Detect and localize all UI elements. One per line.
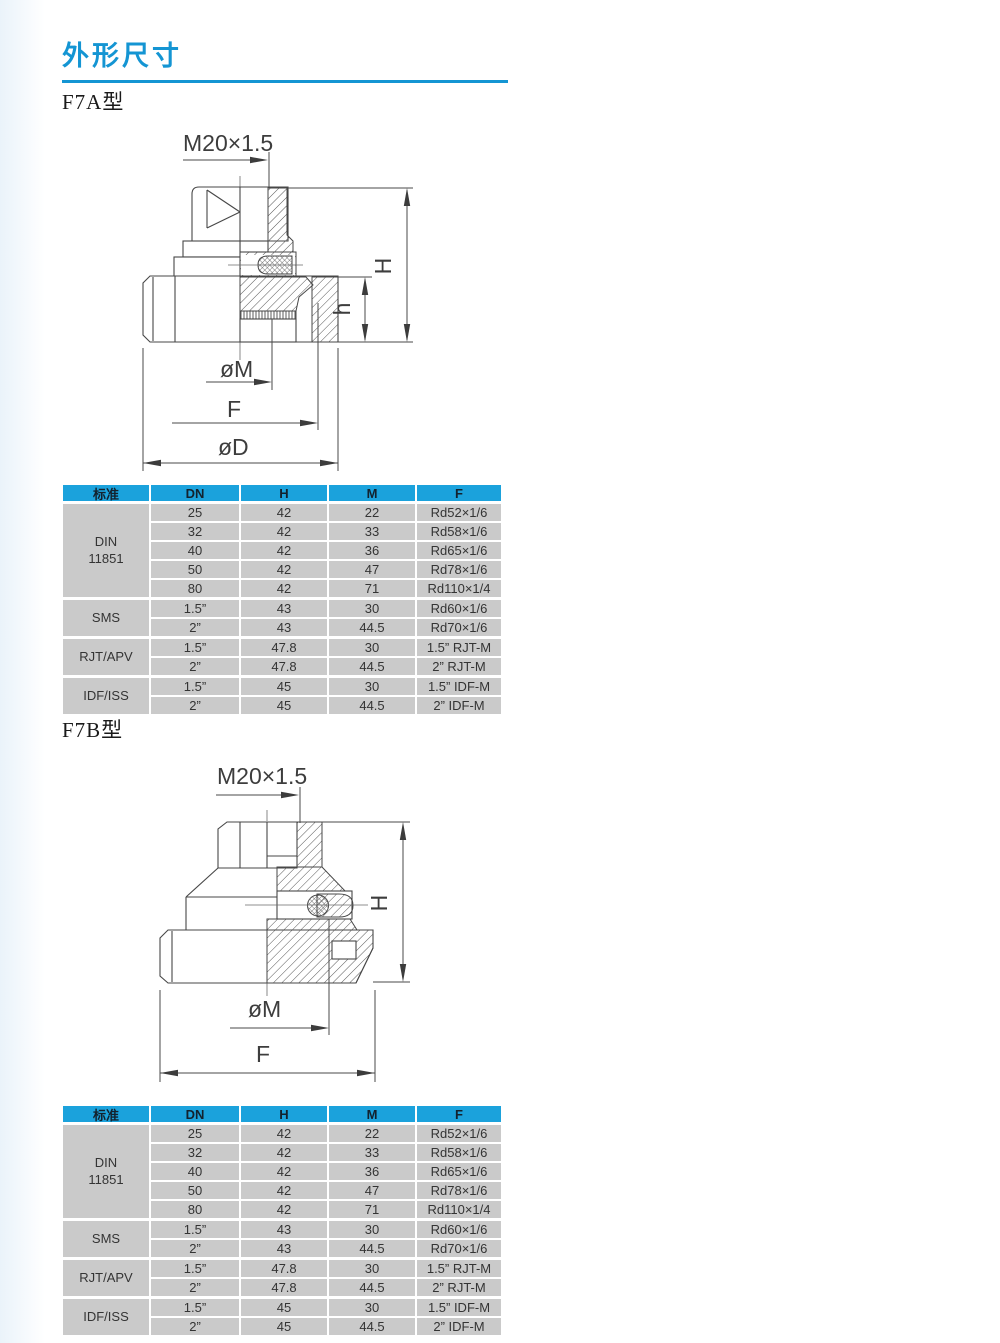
gasket-assembly — [245, 891, 368, 919]
catalog-page: 外形尺寸 F7A型 M20×1.5 — [0, 0, 1000, 1343]
standard-cell: DIN 11851 — [63, 504, 149, 597]
group-rows: 1.5”47.8301.5” RJT-M2”47.844.52” RJT-M — [151, 1260, 501, 1296]
table-cell: 30 — [329, 1299, 415, 1316]
H-label: H — [370, 258, 396, 275]
table-cell: 2” IDF-M — [417, 1318, 501, 1335]
table-cell: 1.5” RJT-M — [417, 1260, 501, 1277]
standard-cell: SMS — [63, 1221, 149, 1257]
table-cell: Rd52×1/6 — [417, 504, 501, 521]
section-hatch — [277, 867, 347, 893]
table-cell: 42 — [241, 542, 327, 559]
table-row: 1.5”4330Rd60×1/6 — [151, 600, 501, 617]
table-cell: Rd60×1/6 — [417, 600, 501, 617]
section-label-f7b: F7B型 — [62, 714, 123, 744]
table-cell: 1.5” — [151, 600, 239, 617]
standard-cell: IDF/ISS — [63, 1299, 149, 1335]
table-cell: 47.8 — [241, 658, 327, 675]
column-header: DN — [151, 1106, 239, 1122]
table-header-row: 标准DNHMF — [63, 1106, 501, 1122]
table-cell: 44.5 — [329, 658, 415, 675]
dim-thread: M20×1.5 — [216, 763, 307, 823]
group-rows: 1.5”45301.5” IDF-M2”4544.52” IDF-M — [151, 678, 501, 714]
standard-group: DIN 11851254222Rd52×1/6324233Rd58×1/6404… — [63, 1125, 501, 1218]
table-cell: Rd58×1/6 — [417, 523, 501, 540]
table-cell: 40 — [151, 542, 239, 559]
table-cell: 43 — [241, 619, 327, 636]
group-rows: 1.5”47.8301.5” RJT-M2”47.844.52” RJT-M — [151, 639, 501, 675]
standard-cell: RJT/APV — [63, 1260, 149, 1296]
table-cell: 40 — [151, 1163, 239, 1180]
table-cell: 1.5” RJT-M — [417, 639, 501, 656]
section-label-f7a: F7A型 — [62, 86, 124, 116]
table-cell: Rd58×1/6 — [417, 1144, 501, 1161]
standard-group: SMS1.5”4330Rd60×1/62”4344.5Rd70×1/6 — [63, 1221, 501, 1257]
table-cell: 2” RJT-M — [417, 658, 501, 675]
table-row: 404236Rd65×1/6 — [151, 542, 501, 559]
dimension-table-f7b: 标准DNHMFDIN 11851254222Rd52×1/6324233Rd58… — [63, 1106, 501, 1335]
standard-cell: DIN 11851 — [63, 1125, 149, 1218]
table-row: 2”4544.52” IDF-M — [151, 1318, 501, 1335]
table-cell: 45 — [241, 697, 327, 714]
table-cell: 2” IDF-M — [417, 697, 501, 714]
column-header: DN — [151, 485, 239, 501]
page-title-block: 外形尺寸 — [62, 34, 508, 83]
table-cell: Rd65×1/6 — [417, 542, 501, 559]
table-cell: 2” — [151, 1318, 239, 1335]
table-row: 504247Rd78×1/6 — [151, 1182, 501, 1199]
table-cell: 33 — [329, 1144, 415, 1161]
standard-cell: SMS — [63, 600, 149, 636]
h-label: h — [329, 303, 355, 316]
standard-group: DIN 11851254222Rd52×1/6324233Rd58×1/6404… — [63, 504, 501, 597]
dim-thread: M20×1.5 — [183, 130, 273, 190]
table-cell: 1.5” — [151, 678, 239, 695]
table-cell: 1.5” — [151, 639, 239, 656]
column-header: M — [329, 1106, 415, 1122]
table-cell: 33 — [329, 523, 415, 540]
table-cell: Rd78×1/6 — [417, 1182, 501, 1199]
D-label: øD — [218, 434, 249, 460]
table-cell: 71 — [329, 580, 415, 597]
table-cell: 45 — [241, 1299, 327, 1316]
table-cell: 22 — [329, 504, 415, 521]
table-cell: Rd60×1/6 — [417, 1221, 501, 1238]
table-cell: Rd70×1/6 — [417, 1240, 501, 1257]
table-cell: 47.8 — [241, 639, 327, 656]
standard-group: IDF/ISS1.5”45301.5” IDF-M2”4544.52” IDF-… — [63, 678, 501, 714]
table-cell: 47.8 — [241, 1279, 327, 1296]
nut — [160, 930, 373, 983]
table-cell: 42 — [241, 1144, 327, 1161]
cap — [218, 822, 322, 868]
dimension-table-f7a: 标准DNHMFDIN 11851254222Rd52×1/6324233Rd58… — [63, 485, 501, 714]
table-row: 804271Rd110×1/4 — [151, 1201, 501, 1218]
table-row: 804271Rd110×1/4 — [151, 580, 501, 597]
table-cell: 50 — [151, 561, 239, 578]
table-cell: 45 — [241, 1318, 327, 1335]
table-cell: 1.5” — [151, 1299, 239, 1316]
table-cell: 42 — [241, 580, 327, 597]
table-cell: 42 — [241, 1163, 327, 1180]
table-cell: 2” — [151, 1279, 239, 1296]
f7a-dimension-drawing: M20×1.5 — [125, 122, 465, 478]
thread-label: M20×1.5 — [183, 130, 273, 156]
group-rows: 254222Rd52×1/6324233Rd58×1/6404236Rd65×1… — [151, 504, 501, 597]
thread-stub — [240, 319, 296, 342]
table-cell: 42 — [241, 1182, 327, 1199]
table-cell: 42 — [241, 504, 327, 521]
table-cell: 47 — [329, 561, 415, 578]
table-cell: 80 — [151, 580, 239, 597]
table-row: 2”4344.5Rd70×1/6 — [151, 1240, 501, 1257]
table-cell: 43 — [241, 1240, 327, 1257]
table-cell: 25 — [151, 504, 239, 521]
table-cell: 32 — [151, 523, 239, 540]
column-header: 标准 — [63, 1106, 149, 1122]
table-cell: 36 — [329, 1163, 415, 1180]
table-cell: 44.5 — [329, 1318, 415, 1335]
table-cell: 22 — [329, 1125, 415, 1142]
thread-zone — [240, 311, 296, 319]
table-row: 324233Rd58×1/6 — [151, 523, 501, 540]
section-hatch — [267, 919, 357, 930]
table-cell: 1.5” IDF-M — [417, 1299, 501, 1316]
table-cell: 30 — [329, 1260, 415, 1277]
M-label: øM — [248, 996, 281, 1022]
table-cell: 44.5 — [329, 1279, 415, 1296]
table-cell: 47 — [329, 1182, 415, 1199]
nut — [143, 276, 338, 342]
table-cell: 44.5 — [329, 1240, 415, 1257]
standard-group: IDF/ISS1.5”45301.5” IDF-M2”4544.52” IDF-… — [63, 1299, 501, 1335]
section-hatch — [267, 930, 373, 983]
standard-cell: RJT/APV — [63, 639, 149, 675]
table-cell: 25 — [151, 1125, 239, 1142]
table-cell: 32 — [151, 1144, 239, 1161]
table-cell: Rd70×1/6 — [417, 619, 501, 636]
table-row: 2”47.844.52” RJT-M — [151, 1279, 501, 1296]
table-cell: 30 — [329, 1221, 415, 1238]
table-cell: 2” — [151, 697, 239, 714]
table-row: 2”4544.52” IDF-M — [151, 697, 501, 714]
thread-notch — [240, 241, 268, 252]
standard-group: RJT/APV1.5”47.8301.5” RJT-M2”47.844.52” … — [63, 1260, 501, 1296]
group-rows: 1.5”4330Rd60×1/62”4344.5Rd70×1/6 — [151, 1221, 501, 1257]
table-cell: 71 — [329, 1201, 415, 1218]
group-rows: 1.5”4330Rd60×1/62”4344.5Rd70×1/6 — [151, 600, 501, 636]
column-header: 标准 — [63, 485, 149, 501]
table-cell: Rd78×1/6 — [417, 561, 501, 578]
table-row: 254222Rd52×1/6 — [151, 504, 501, 521]
step — [174, 257, 240, 277]
standard-group: RJT/APV1.5”47.8301.5” RJT-M2”47.844.52” … — [63, 639, 501, 675]
table-cell: 30 — [329, 678, 415, 695]
table-cell: 2” — [151, 619, 239, 636]
gasket — [308, 895, 329, 916]
table-cell: 2” — [151, 658, 239, 675]
group-rows: 1.5”45301.5” IDF-M2”4544.52” IDF-M — [151, 1299, 501, 1335]
table-cell: 50 — [151, 1182, 239, 1199]
table-cell: 42 — [241, 523, 327, 540]
table-row: 1.5”47.8301.5” RJT-M — [151, 639, 501, 656]
table-row: 1.5”4330Rd60×1/6 — [151, 1221, 501, 1238]
table-cell: Rd52×1/6 — [417, 1125, 501, 1142]
table-cell: 2” — [151, 1240, 239, 1257]
table-cell: 44.5 — [329, 619, 415, 636]
page-title: 外形尺寸 — [62, 41, 182, 72]
f7b-dimension-drawing: M20×1.5 — [145, 750, 470, 1095]
table-header-row: 标准DNHMF — [63, 485, 501, 501]
table-row: 2”4344.5Rd70×1/6 — [151, 619, 501, 636]
table-row: 2”47.844.52” RJT-M — [151, 658, 501, 675]
table-cell: 80 — [151, 1201, 239, 1218]
table-row: 1.5”45301.5” IDF-M — [151, 1299, 501, 1316]
table-row: 404236Rd65×1/6 — [151, 1163, 501, 1180]
table-row: 1.5”45301.5” IDF-M — [151, 678, 501, 695]
table-cell: 45 — [241, 678, 327, 695]
table-cell: 30 — [329, 600, 415, 617]
table-row: 324233Rd58×1/6 — [151, 1144, 501, 1161]
group-rows: 254222Rd52×1/6324233Rd58×1/6404236Rd65×1… — [151, 1125, 501, 1218]
F-label: F — [256, 1041, 270, 1067]
column-header: F — [417, 1106, 501, 1122]
slot-notch — [332, 941, 356, 959]
standard-cell: IDF/ISS — [63, 678, 149, 714]
table-cell: 47.8 — [241, 1260, 327, 1277]
thread-label: M20×1.5 — [217, 763, 307, 789]
standard-group: SMS1.5”4330Rd60×1/62”4344.5Rd70×1/6 — [63, 600, 501, 636]
table-cell: 1.5” — [151, 1260, 239, 1277]
table-cell: 30 — [329, 639, 415, 656]
table-cell: 42 — [241, 1201, 327, 1218]
column-header: F — [417, 485, 501, 501]
F-label: F — [227, 396, 241, 422]
table-row: 254222Rd52×1/6 — [151, 1125, 501, 1142]
step — [183, 241, 240, 257]
table-cell: 42 — [241, 1125, 327, 1142]
table-cell: 2” RJT-M — [417, 1279, 501, 1296]
table-cell: Rd110×1/4 — [417, 1201, 501, 1218]
table-cell: 43 — [241, 600, 327, 617]
column-header: H — [241, 485, 327, 501]
section-hatch — [297, 822, 322, 867]
table-row: 1.5”47.8301.5” RJT-M — [151, 1260, 501, 1277]
table-cell: 1.5” — [151, 1221, 239, 1238]
table-cell: 44.5 — [329, 697, 415, 714]
column-header: H — [241, 1106, 327, 1122]
section-hatch — [268, 188, 293, 252]
table-row: 504247Rd78×1/6 — [151, 561, 501, 578]
table-cell: 43 — [241, 1221, 327, 1238]
M-label: øM — [220, 356, 253, 382]
table-cell: Rd65×1/6 — [417, 1163, 501, 1180]
table-cell: Rd110×1/4 — [417, 580, 501, 597]
H-label: H — [366, 895, 392, 912]
table-cell: 1.5” IDF-M — [417, 678, 501, 695]
table-cell: 42 — [241, 561, 327, 578]
column-header: M — [329, 485, 415, 501]
table-cell: 36 — [329, 542, 415, 559]
